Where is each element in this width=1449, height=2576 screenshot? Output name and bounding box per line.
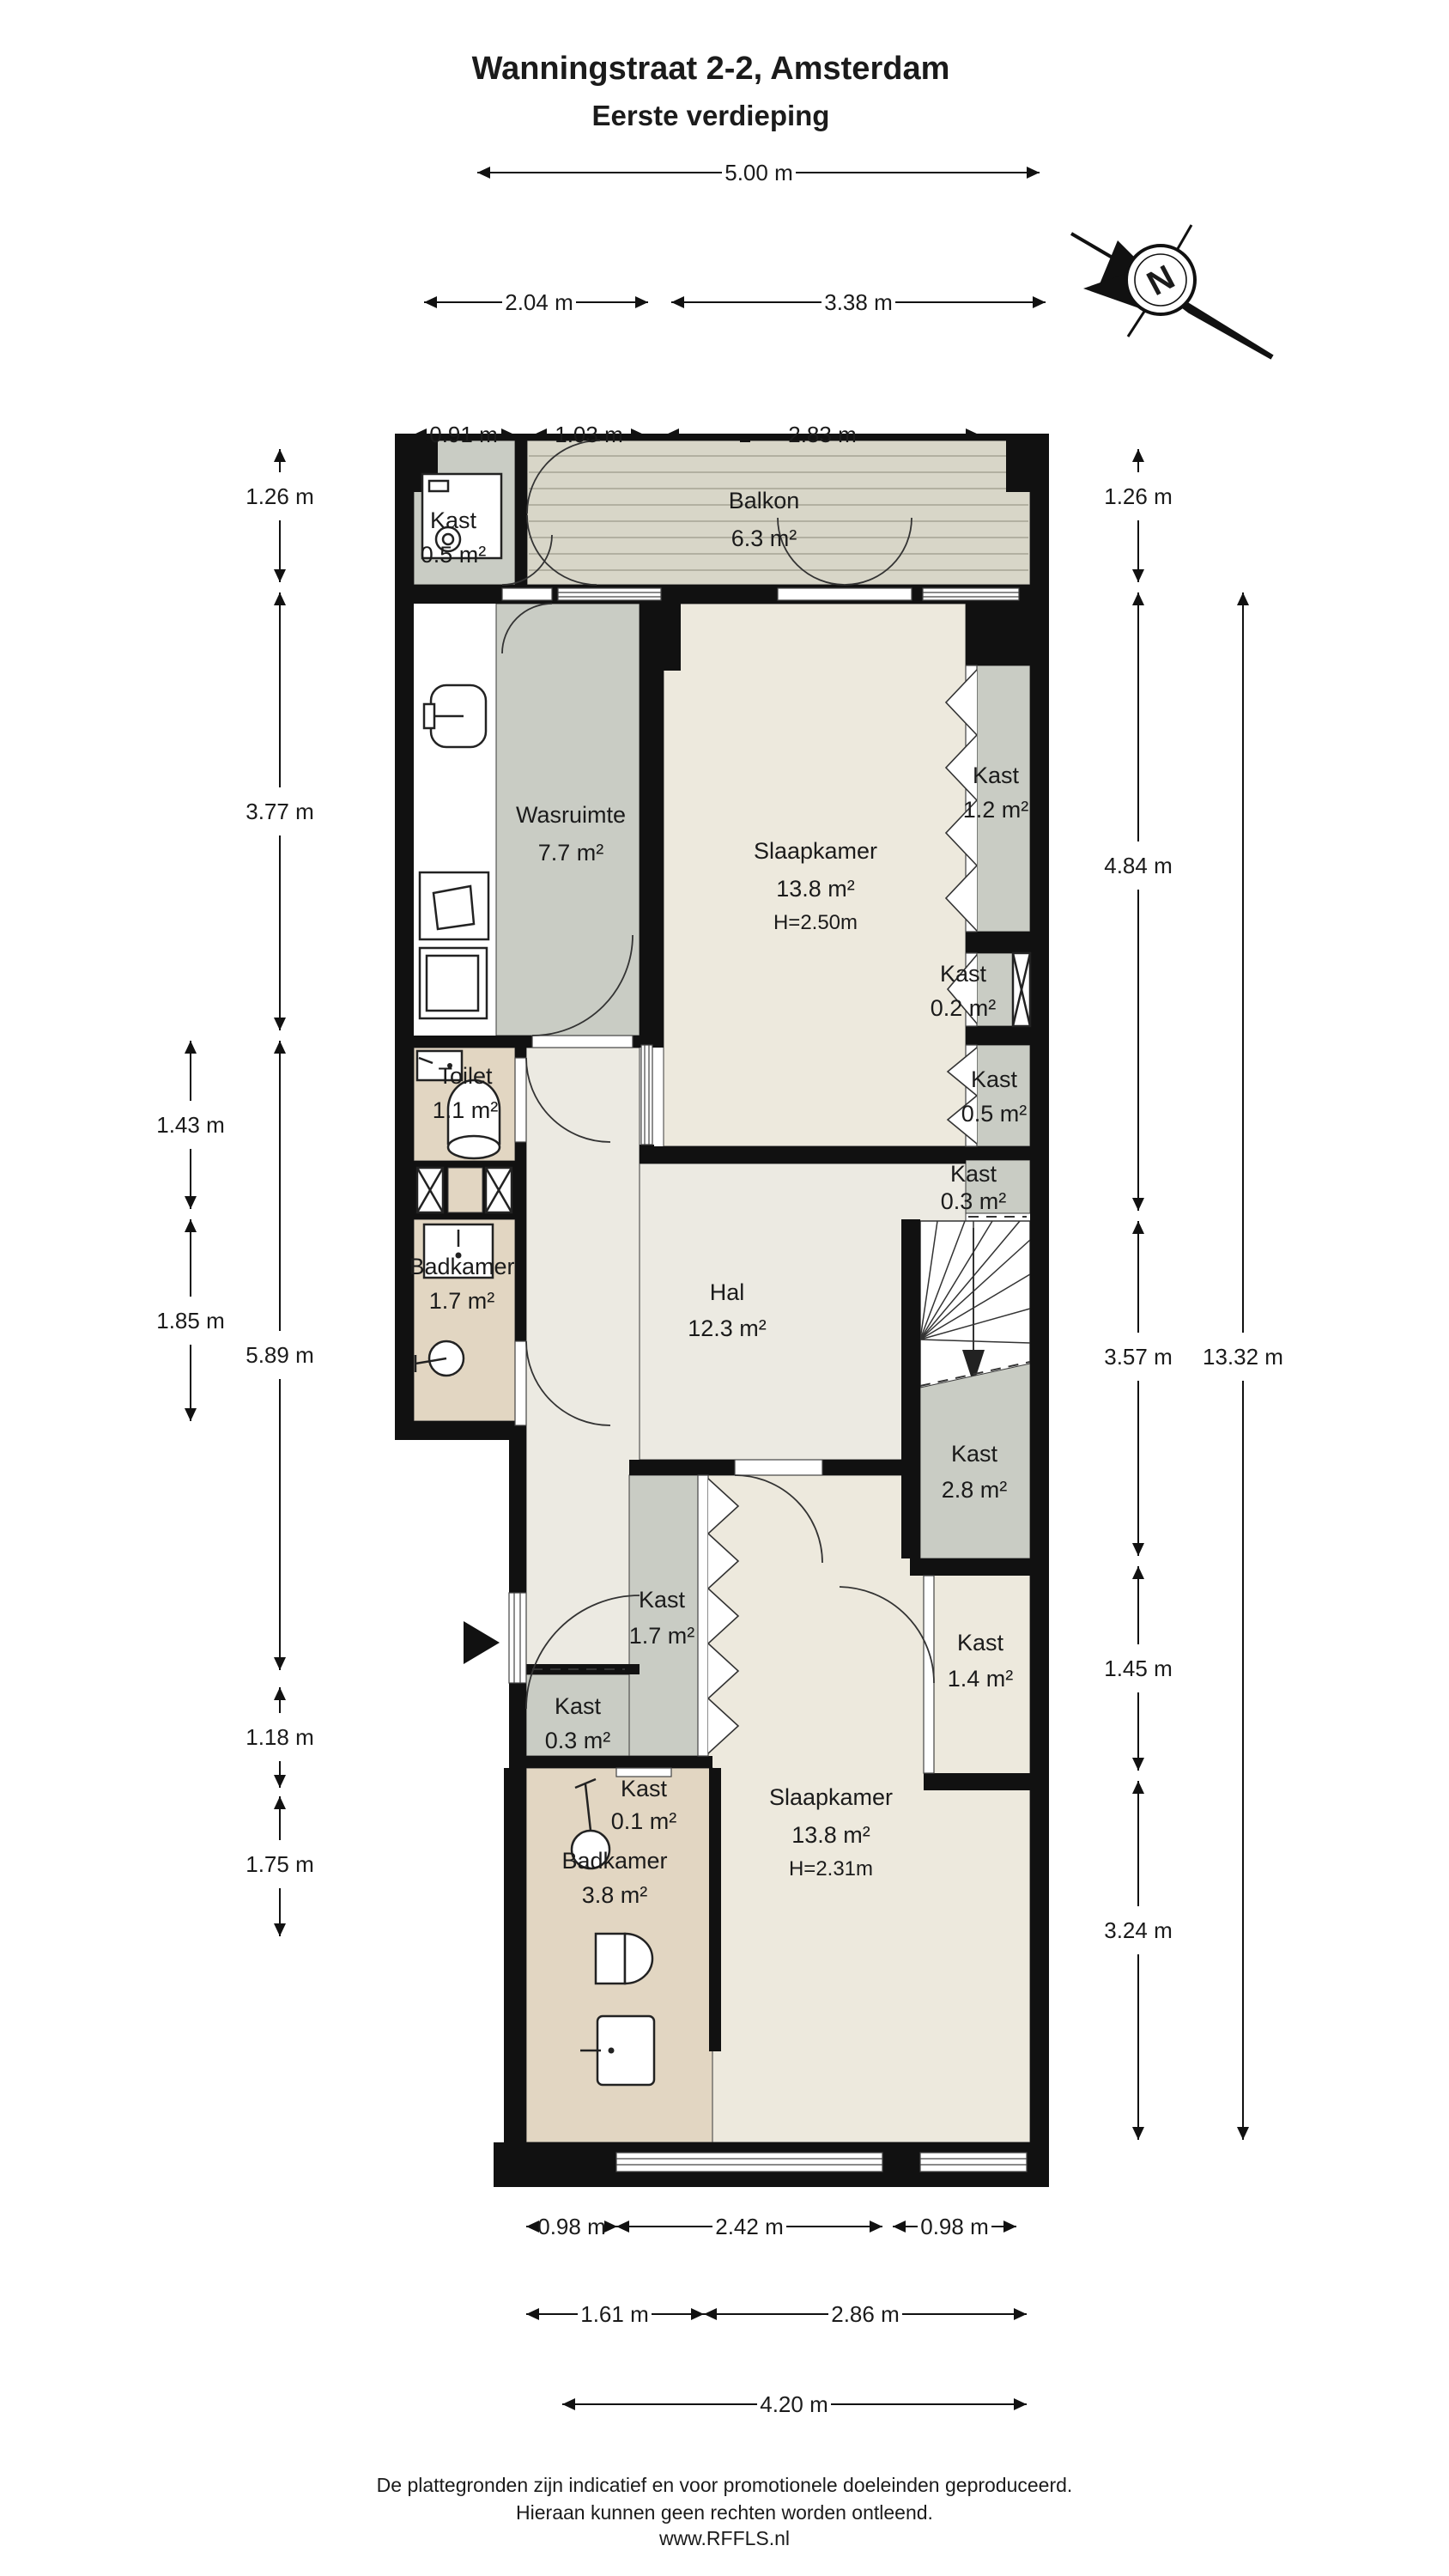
wall-badkamer-slaapkamer	[709, 1768, 721, 2051]
door-slaapkamer-boven	[641, 1045, 652, 1145]
floorplan-page: Wanningstraat 2-2, Amsterdam Eerste verd…	[0, 0, 1449, 2576]
dim-label: 1.43 m	[156, 1112, 225, 1138]
compass-rose: N	[1071, 225, 1272, 357]
kast-0-1-area: 0.1 m²	[611, 1808, 677, 1834]
kast-1-7-name: Kast	[639, 1587, 686, 1613]
dim-right-324: 3.24 m	[1104, 1781, 1173, 2140]
slaapkamer-onder-name: Slaapkamer	[769, 1784, 893, 1810]
dim-label: 0.91 m	[429, 422, 498, 447]
window-facade-1	[558, 588, 661, 600]
wall-slaapkamer-notch	[664, 604, 681, 671]
dim-bottom-420: 4.20 m	[562, 2391, 1027, 2417]
dim-left-377: 3.77 m	[246, 592, 314, 1030]
kast-0-3-rechts-area: 0.3 m²	[941, 1188, 1007, 1214]
wall-left-outer	[395, 434, 414, 1440]
dim-top-500: 5.00 m	[477, 160, 1040, 185]
kast-2-8-name: Kast	[951, 1441, 998, 1467]
dim-bottom-286: 2.86 m	[704, 2301, 1027, 2327]
page-title: Wanningstraat 2-2, Amsterdam Eerste verd…	[472, 51, 950, 131]
footer-line2: Hieraan kunnen geen rechten worden ontle…	[516, 2501, 933, 2524]
kast-balkon-name: Kast	[430, 507, 477, 533]
kast-1-7-area: 1.7 m²	[629, 1623, 695, 1649]
dimensions-left: 1.26 m 3.77 m 1.43 m 1.85 m 5.89 m 1.18 …	[156, 449, 314, 1936]
dim-bottom-242: 2.42 m	[616, 2214, 882, 2239]
balkon-name: Balkon	[729, 488, 800, 513]
dim-right-1332: 13.32 m	[1203, 592, 1283, 2140]
wall-badkamer-onder-west	[504, 1768, 526, 2142]
dim-right-484: 4.84 m	[1104, 592, 1173, 1211]
wall-kastcol-band1	[966, 932, 1030, 953]
dim-label: 1.45 m	[1104, 1656, 1173, 1681]
dim-label: 0.98 m	[537, 2214, 606, 2239]
slaapkamer-onder-area: 13.8 m²	[791, 1822, 870, 1848]
dim-label: 13.32 m	[1203, 1344, 1283, 1370]
wall-halframe-post2	[640, 1145, 654, 1163]
dim-label: 2.04 m	[505, 289, 573, 315]
dim-label: 1.18 m	[246, 1724, 314, 1750]
kast-0-5-floor	[977, 1045, 1030, 1146]
dim-top-338: 3.38 m	[671, 289, 1046, 315]
footer-disclaimer: De plattegronden zijn indicatief en voor…	[377, 2474, 1073, 2549]
window-zuidgevel-2	[920, 2153, 1027, 2172]
kast-0-5-area: 0.5 m²	[961, 1101, 1028, 1127]
dim-label: 3.57 m	[1104, 1344, 1173, 1370]
entrance-arrow-icon	[464, 1621, 500, 1664]
dim-bottom-161: 1.61 m	[526, 2301, 704, 2327]
title-line2: Eerste verdieping	[592, 100, 830, 131]
kast-0-5-name: Kast	[971, 1066, 1018, 1092]
dim-label: 2.42 m	[715, 2214, 784, 2239]
dim-right-357: 3.57 m	[1104, 1221, 1173, 1556]
window-facade-2	[923, 588, 1019, 600]
washer-1-icon	[420, 872, 488, 939]
footer-line1: De plattegronden zijn indicatief en voor…	[377, 2474, 1073, 2496]
kast-1-2-name: Kast	[973, 762, 1020, 788]
wall-badkamer-onder-noord	[526, 1756, 712, 1768]
kast-1-2-area: 1.2 m²	[963, 797, 1029, 823]
kast-2-8-area: 2.8 m²	[942, 1477, 1008, 1503]
wall-kast14-zuid	[924, 1773, 1049, 1790]
toilet-badkamer-onder-icon	[596, 1934, 652, 1984]
dim-label: 1.26 m	[1104, 483, 1173, 509]
balkon-area: 6.3 m²	[731, 526, 797, 551]
dim-label: 5.89 m	[246, 1342, 314, 1368]
slaapkamer-boven-name: Slaapkamer	[754, 838, 877, 864]
dim-label: 3.24 m	[1104, 1917, 1173, 1943]
kast-1-4-name: Kast	[957, 1630, 1004, 1656]
shaft-links	[417, 1168, 443, 1212]
wall-halframe-post1	[640, 1036, 654, 1045]
shaft-kastcol	[1013, 953, 1030, 1026]
wall-badkamer-boven-zuid	[395, 1421, 526, 1440]
wall-kast28-zuid	[910, 1558, 1049, 1576]
dim-bottom-098b: 0.98 m	[893, 2214, 1016, 2239]
kast-0-2-area: 0.2 m²	[931, 995, 997, 1021]
badkamer-onder-name: Badkamer	[561, 1848, 667, 1874]
dim-left-589: 5.89 m	[246, 1041, 314, 1670]
slaapkamer-boven-hoogte: H=2.50m	[773, 911, 858, 934]
kast-0-3-rechts-name: Kast	[950, 1161, 997, 1187]
dim-left-175: 1.75 m	[246, 1796, 314, 1936]
dim-right-145: 1.45 m	[1104, 1566, 1173, 1771]
dim-right-126: 1.26 m	[1104, 449, 1173, 582]
wall-kastcol-band3	[966, 1146, 1030, 1160]
washer-2-icon	[420, 948, 487, 1018]
kast-0-1-name: Kast	[621, 1776, 668, 1801]
dim-label: 4.84 m	[1104, 853, 1173, 878]
slaapkamer-boven-area: 13.8 m²	[776, 876, 855, 902]
wasruimte-name: Wasruimte	[516, 802, 626, 828]
dim-label: 1.26 m	[246, 483, 314, 509]
slaapkamer-onder-hoogte: H=2.31m	[789, 1857, 873, 1880]
dim-label: 1.61 m	[580, 2301, 649, 2327]
dimensions-bottom: 0.98 m 2.42 m 0.98 m 1.61 m 2.86 m 4.20 …	[526, 2214, 1027, 2417]
dim-label: 4.20 m	[760, 2391, 828, 2417]
footer-website: www.RFFLS.nl	[658, 2527, 790, 2549]
dim-label: 3.77 m	[246, 799, 314, 824]
wasruimte-area: 7.7 m²	[538, 840, 604, 866]
dim-left-143: 1.43 m	[156, 1041, 225, 1209]
dim-label: 3.38 m	[824, 289, 893, 315]
dim-label: 1.75 m	[246, 1851, 314, 1877]
shaft-rechts	[486, 1168, 512, 1212]
wall-right-outer	[1030, 434, 1049, 2185]
slaapkamer-boven-floor	[664, 604, 966, 1146]
toilet-name: Toilet	[438, 1063, 493, 1089]
kast-1-7-floor	[629, 1475, 698, 1756]
dim-top-204: 2.04 m	[424, 289, 648, 315]
dim-label: 0.98 m	[920, 2214, 989, 2239]
wall-wasruimte-slaapkamer	[640, 604, 664, 1036]
kast-0-3-links-area: 0.3 m²	[545, 1728, 611, 1753]
wall-trap-west	[901, 1219, 920, 1558]
toilet-area: 1.1 m²	[433, 1097, 499, 1123]
window-zuidgevel-1	[616, 2153, 882, 2172]
badkamer-boven-name: Badkamer	[409, 1254, 514, 1279]
staircase	[920, 1217, 1030, 1558]
wall-slaapkamer-boven-zuid	[641, 1146, 966, 1163]
dim-label: 5.00 m	[724, 160, 793, 185]
title-line1: Wanningstraat 2-2, Amsterdam	[472, 51, 950, 87]
hal-area: 12.3 m²	[688, 1315, 767, 1341]
dim-bottom-098a: 0.98 m	[526, 2214, 617, 2239]
wall-corridor-west2	[509, 1683, 526, 1768]
sink-wasruimte-icon	[424, 685, 486, 747]
dim-left-118: 1.18 m	[246, 1687, 314, 1788]
kast-0-3-links-name: Kast	[555, 1693, 602, 1719]
dim-left-126: 1.26 m	[246, 449, 314, 582]
dimensions-right: 1.26 m 4.84 m 3.57 m 1.45 m 3.24 m 13.32…	[1104, 449, 1283, 2140]
badkamer-boven-area: 1.7 m²	[429, 1288, 495, 1314]
kast-balkon-area: 0.5 m²	[421, 542, 487, 568]
hal-name: Hal	[710, 1279, 745, 1305]
wall-kast-balkon-scheiding	[515, 440, 527, 585]
dim-label: 2.86 m	[831, 2301, 900, 2327]
wall-corridor-west1	[509, 1440, 526, 1593]
shaft-middle-strip	[448, 1168, 482, 1212]
dimensions-top: 5.00 m 2.04 m 3.38 m 0.91 m 1.03 m 2.83 …	[414, 160, 1046, 447]
dim-left-185: 1.85 m	[156, 1219, 225, 1421]
floorplan-svg: Wanningstraat 2-2, Amsterdam Eerste verd…	[0, 0, 1449, 2576]
dim-label: 1.85 m	[156, 1308, 225, 1334]
badkamer-onder-area: 3.8 m²	[582, 1882, 648, 1908]
kast-0-2-name: Kast	[940, 961, 987, 987]
dim-label: 2.83 m	[788, 422, 857, 447]
kast-1-4-area: 1.4 m²	[948, 1666, 1014, 1692]
wall-kastcol-band2	[966, 1026, 1030, 1045]
dim-label: 1.03 m	[555, 422, 623, 447]
